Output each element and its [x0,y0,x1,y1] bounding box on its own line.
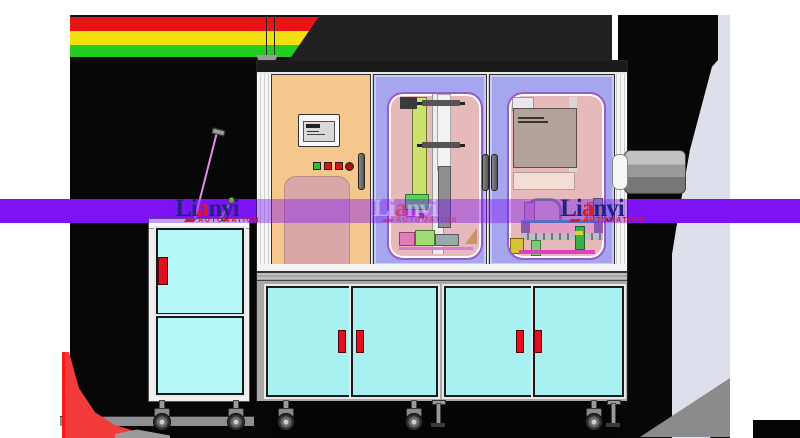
green-cylinder [575,226,585,250]
machine-part [575,231,583,235]
process-window-right [507,92,606,260]
process-window-left [387,92,483,260]
outfeed-cylinder [624,150,686,194]
hmi-text-line [307,134,325,135]
machine-part [400,97,417,109]
indicator-button-2 [335,162,343,170]
lower-cabinet [257,280,627,401]
hmi-window-icon [306,124,320,128]
gantry-beam [521,223,603,233]
gantry-rail-gray [521,233,603,240]
watermark-swoosh-icon [382,219,394,222]
side-cabinet-door-lower [156,316,244,395]
watermark-subtitle: AUTOMATION [527,217,657,224]
caster-wheel [150,400,172,434]
watermark-subtitle: AUTOMATION [340,217,470,224]
signal-tower-pole [266,15,275,57]
estop-button [345,162,354,171]
main-machine [256,60,628,401]
label-plate [513,108,577,168]
process-door-right [489,74,615,266]
leveling-foot [606,400,620,430]
plate-text-line [518,121,548,123]
hmi-text-line [307,131,319,132]
motor-block [422,100,460,106]
caster-wheel [402,400,424,434]
process-door-handle-right [491,154,498,191]
machine-part [465,228,477,244]
machine-part [435,234,459,246]
caster-wheel [274,400,296,434]
start-button [313,162,321,170]
cabinet-door-handle [516,330,524,353]
motor-block [422,142,460,148]
watermark-logo: Lianyi AUTOMATION [142,197,272,224]
machine-top-bar [257,61,627,74]
cabinet-door [533,286,624,397]
electrical-door-handle [358,153,365,190]
watermark-swoosh-icon [184,219,196,222]
coupler-capsule [612,154,628,190]
watermark-logo: Lianyi AUTOMATION [527,197,657,224]
leveling-foot [431,400,445,430]
watermark-logo: Lianyi AUTOMATION [340,197,470,224]
side-cabinet [148,218,250,402]
machine-render: Lianyi AUTOMATION Lianyi AUTOMATION Lian… [0,0,800,438]
hmi-screen [298,114,340,147]
process-door-handle-left [482,154,489,191]
base-line [399,247,473,250]
caster-wheel [224,400,246,434]
plate-text-line [518,117,544,119]
side-cabinet-handle [158,257,168,285]
watermark-swoosh-icon [569,219,581,222]
table-strip [257,264,627,271]
cabinet-door-handle [356,330,364,353]
cabinet-door [351,286,438,397]
hmi-display [303,121,335,142]
red-accent-edge [62,352,65,438]
shelf-bar [513,172,575,190]
base-line [519,250,595,254]
watermark-subtitle: AUTOMATION [142,217,272,224]
machine-part [415,230,435,246]
machine-part [399,232,415,246]
side-cabinet-door-upper [156,228,244,315]
indicator-button-1 [324,162,332,170]
top-shadow-block [268,15,612,65]
left-frame-extrusion [257,74,271,271]
signal-tower-light [70,15,320,63]
lift-column [412,97,427,199]
process-door-left [373,74,487,266]
cabinet-door-handle [338,330,346,353]
electrical-door [271,74,371,266]
cabinet-door-handle [534,330,542,353]
caster-wheel [582,400,604,434]
